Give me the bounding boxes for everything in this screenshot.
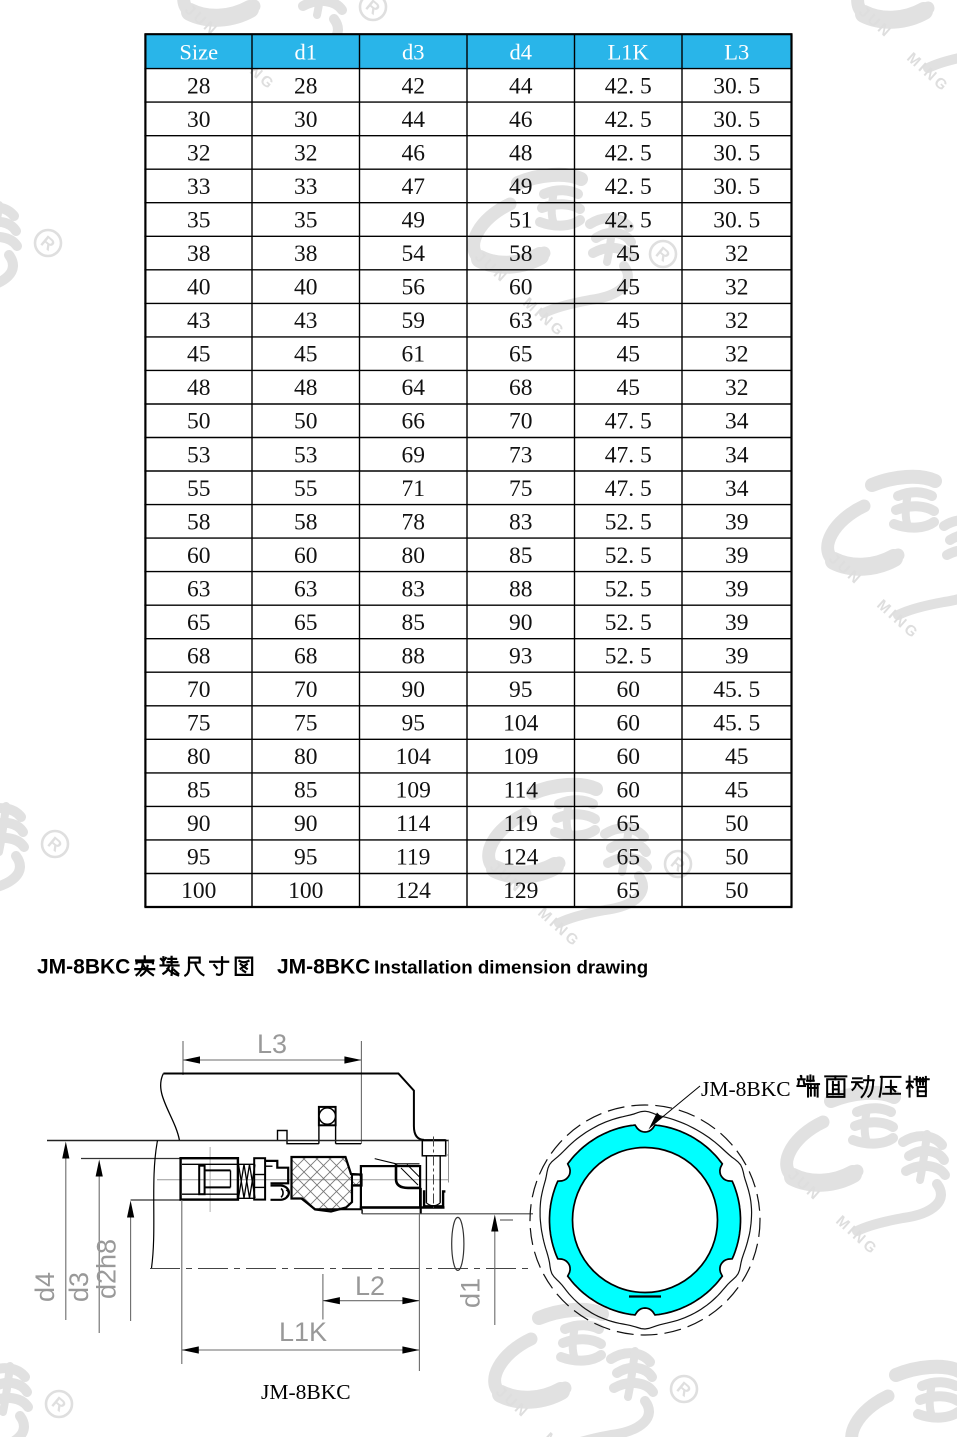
svg-text:129: 129	[503, 878, 538, 904]
svg-text:68: 68	[509, 375, 533, 401]
svg-text:104: 104	[503, 711, 539, 737]
svg-text:JM-8BKC: JM-8BKC	[701, 1077, 791, 1101]
svg-text:JM-8BKC: JM-8BKC	[277, 956, 370, 979]
svg-text:95: 95	[294, 845, 318, 871]
svg-text:58: 58	[509, 241, 533, 267]
svg-text:34: 34	[725, 476, 749, 502]
svg-text:114: 114	[504, 778, 539, 804]
svg-text:70: 70	[187, 677, 211, 703]
svg-text:39: 39	[725, 543, 749, 569]
svg-text:45. 5: 45. 5	[713, 711, 760, 737]
svg-text:30: 30	[187, 107, 211, 133]
svg-text:45: 45	[616, 342, 640, 368]
svg-text:124: 124	[503, 845, 539, 871]
svg-text:63: 63	[187, 576, 211, 602]
svg-text:52. 5: 52. 5	[605, 576, 652, 602]
svg-text:L3: L3	[724, 39, 749, 64]
svg-text:30. 5: 30. 5	[713, 73, 760, 99]
svg-text:32: 32	[725, 275, 749, 301]
svg-text:42. 5: 42. 5	[605, 107, 652, 133]
svg-text:65: 65	[616, 878, 640, 904]
svg-text:JM-8BKC: JM-8BKC	[261, 1380, 351, 1404]
svg-text:65: 65	[616, 811, 640, 837]
svg-text:60: 60	[616, 778, 640, 804]
svg-text:39: 39	[725, 644, 749, 670]
svg-text:50: 50	[725, 811, 749, 837]
svg-text:43: 43	[187, 308, 211, 334]
svg-text:60: 60	[616, 711, 640, 737]
svg-text:70: 70	[509, 409, 533, 435]
svg-text:42. 5: 42. 5	[605, 174, 652, 200]
svg-text:46: 46	[509, 107, 533, 133]
svg-text:48: 48	[509, 140, 533, 166]
svg-text:28: 28	[294, 73, 318, 99]
svg-text:40: 40	[187, 275, 211, 301]
svg-text:L3: L3	[257, 1029, 287, 1059]
svg-text:30. 5: 30. 5	[713, 107, 760, 133]
svg-text:60: 60	[187, 543, 211, 569]
svg-text:45: 45	[616, 375, 640, 401]
svg-text:30. 5: 30. 5	[713, 140, 760, 166]
svg-text:61: 61	[401, 342, 425, 368]
svg-text:55: 55	[187, 476, 211, 502]
svg-text:85: 85	[187, 778, 211, 804]
svg-text:L2: L2	[355, 1271, 385, 1301]
svg-text:40: 40	[294, 275, 318, 301]
svg-text:43: 43	[294, 308, 318, 334]
svg-text:114: 114	[396, 811, 431, 837]
svg-text:60: 60	[616, 744, 640, 770]
svg-text:33: 33	[187, 174, 211, 200]
svg-text:88: 88	[401, 644, 425, 670]
svg-text:65: 65	[616, 845, 640, 871]
svg-text:109: 109	[396, 778, 431, 804]
svg-text:d2h8: d2h8	[92, 1239, 122, 1299]
svg-text:32: 32	[725, 375, 749, 401]
svg-text:68: 68	[294, 644, 318, 670]
svg-text:48: 48	[294, 375, 318, 401]
svg-text:52. 5: 52. 5	[605, 610, 652, 636]
svg-text:44: 44	[509, 73, 533, 99]
svg-text:47: 47	[401, 174, 425, 200]
svg-text:39: 39	[725, 610, 749, 636]
svg-text:38: 38	[187, 241, 211, 267]
svg-text:d3: d3	[64, 1272, 94, 1302]
svg-text:45. 5: 45. 5	[713, 677, 760, 703]
svg-text:33: 33	[294, 174, 318, 200]
svg-text:124: 124	[396, 878, 432, 904]
svg-text:45: 45	[294, 342, 318, 368]
svg-text:32: 32	[725, 241, 749, 267]
svg-text:119: 119	[396, 845, 430, 871]
svg-text:L1K: L1K	[608, 39, 650, 64]
svg-text:47. 5: 47. 5	[605, 442, 652, 468]
svg-text:30. 5: 30. 5	[713, 174, 760, 200]
svg-text:75: 75	[294, 711, 318, 737]
svg-text:50: 50	[294, 409, 318, 435]
svg-text:Installation dimension drawing: Installation dimension drawing	[374, 957, 648, 978]
svg-text:45: 45	[616, 308, 640, 334]
svg-text:45: 45	[187, 342, 211, 368]
svg-text:75: 75	[509, 476, 533, 502]
svg-text:39: 39	[725, 509, 749, 535]
svg-text:100: 100	[288, 878, 323, 904]
svg-text:50: 50	[725, 878, 749, 904]
svg-text:54: 54	[401, 241, 425, 267]
svg-text:58: 58	[294, 509, 318, 535]
svg-text:53: 53	[294, 442, 318, 468]
svg-text:60: 60	[616, 677, 640, 703]
svg-text:65: 65	[187, 610, 211, 636]
svg-text:32: 32	[187, 140, 211, 166]
svg-text:85: 85	[509, 543, 533, 569]
svg-text:70: 70	[294, 677, 318, 703]
svg-text:d4: d4	[510, 39, 533, 64]
svg-text:93: 93	[509, 644, 533, 670]
svg-text:104: 104	[396, 744, 432, 770]
svg-text:63: 63	[509, 308, 533, 334]
svg-text:95: 95	[401, 711, 425, 737]
svg-text:59: 59	[401, 308, 425, 334]
svg-text:78: 78	[401, 509, 425, 535]
svg-text:65: 65	[294, 610, 318, 636]
svg-text:119: 119	[504, 811, 538, 837]
svg-text:45: 45	[616, 275, 640, 301]
svg-text:35: 35	[294, 208, 318, 234]
svg-text:52. 5: 52. 5	[605, 543, 652, 569]
svg-text:53: 53	[187, 442, 211, 468]
svg-text:44: 44	[401, 107, 425, 133]
svg-text:L1K: L1K	[279, 1317, 327, 1347]
svg-text:50: 50	[187, 409, 211, 435]
svg-text:49: 49	[401, 208, 425, 234]
svg-text:46: 46	[401, 140, 425, 166]
svg-text:45: 45	[725, 778, 749, 804]
svg-text:64: 64	[401, 375, 425, 401]
svg-text:JM-8BKC: JM-8BKC	[37, 956, 130, 979]
svg-text:52. 5: 52. 5	[605, 509, 652, 535]
svg-text:28: 28	[187, 73, 211, 99]
svg-text:90: 90	[187, 811, 211, 837]
svg-text:60: 60	[294, 543, 318, 569]
svg-text:55: 55	[294, 476, 318, 502]
svg-text:75: 75	[187, 711, 211, 737]
svg-text:69: 69	[401, 442, 425, 468]
svg-text:34: 34	[725, 442, 749, 468]
svg-text:90: 90	[294, 811, 318, 837]
svg-text:52. 5: 52. 5	[605, 644, 652, 670]
svg-text:d4: d4	[30, 1272, 60, 1302]
svg-text:85: 85	[294, 778, 318, 804]
svg-text:80: 80	[401, 543, 425, 569]
svg-text:34: 34	[725, 409, 749, 435]
svg-text:100: 100	[181, 878, 216, 904]
svg-text:60: 60	[509, 275, 533, 301]
svg-text:95: 95	[509, 677, 533, 703]
svg-text:45: 45	[725, 744, 749, 770]
svg-text:63: 63	[294, 576, 318, 602]
svg-text:42. 5: 42. 5	[605, 140, 652, 166]
svg-text:d3: d3	[402, 39, 425, 64]
svg-text:50: 50	[725, 845, 749, 871]
svg-text:42: 42	[401, 73, 425, 99]
svg-text:51: 51	[509, 208, 533, 234]
svg-text:47. 5: 47. 5	[605, 476, 652, 502]
svg-text:32: 32	[725, 308, 749, 334]
svg-text:30: 30	[294, 107, 318, 133]
svg-text:39: 39	[725, 576, 749, 602]
svg-text:35: 35	[187, 208, 211, 234]
svg-text:90: 90	[401, 677, 425, 703]
svg-text:80: 80	[187, 744, 211, 770]
svg-text:65: 65	[509, 342, 533, 368]
svg-text:80: 80	[294, 744, 318, 770]
svg-text:68: 68	[187, 644, 211, 670]
svg-text:83: 83	[509, 509, 533, 535]
svg-text:56: 56	[401, 275, 425, 301]
svg-text:71: 71	[401, 476, 425, 502]
svg-text:42. 5: 42. 5	[605, 73, 652, 99]
svg-text:32: 32	[725, 342, 749, 368]
svg-text:85: 85	[401, 610, 425, 636]
svg-text:83: 83	[401, 576, 425, 602]
svg-text:58: 58	[187, 509, 211, 535]
svg-text:95: 95	[187, 845, 211, 871]
svg-text:42. 5: 42. 5	[605, 208, 652, 234]
svg-text:109: 109	[503, 744, 538, 770]
svg-text:49: 49	[509, 174, 533, 200]
svg-text:73: 73	[509, 442, 533, 468]
svg-text:47. 5: 47. 5	[605, 409, 652, 435]
svg-text:66: 66	[401, 409, 425, 435]
svg-text:38: 38	[294, 241, 318, 267]
svg-text:Size: Size	[179, 39, 218, 64]
svg-text:d1: d1	[456, 1278, 486, 1308]
svg-text:48: 48	[187, 375, 211, 401]
svg-text:30. 5: 30. 5	[713, 208, 760, 234]
svg-text:32: 32	[294, 140, 318, 166]
svg-text:88: 88	[509, 576, 533, 602]
svg-text:d1: d1	[295, 39, 318, 64]
svg-text:90: 90	[509, 610, 533, 636]
svg-text:45: 45	[616, 241, 640, 267]
